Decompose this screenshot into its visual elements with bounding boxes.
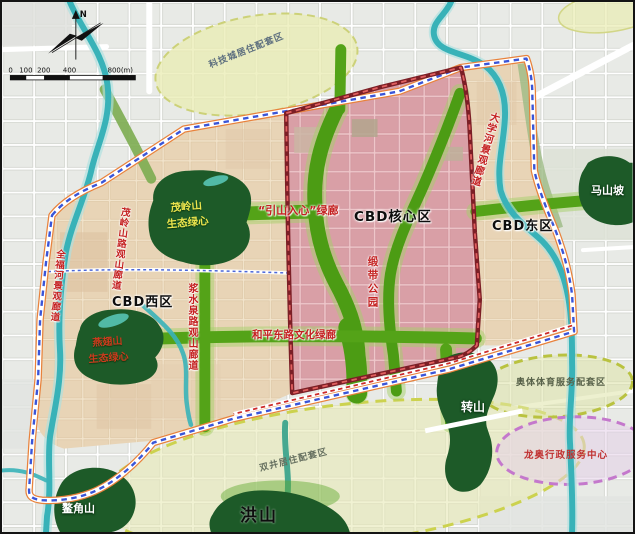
label-mashanpo: 马山坡 bbox=[591, 185, 624, 197]
label-cbd-core: CBD核心区 bbox=[354, 210, 432, 225]
scale-tick-200: 200 bbox=[37, 66, 50, 74]
label-hongshan: 洪山 bbox=[240, 507, 278, 526]
scale-tick-400: 400 bbox=[63, 66, 76, 74]
scale-tick-800: 800(m) bbox=[108, 66, 134, 74]
label-aojiaoshan: 鳌角山 bbox=[62, 503, 95, 515]
label-jiangshuiquan-corridor: 浆水泉路观山廊道 bbox=[186, 283, 197, 371]
label-longao-area: 龙奥行政服务中心 bbox=[524, 451, 608, 461]
scale-tick-0: 0 bbox=[8, 66, 12, 74]
label-maoling-heart: 茂岭山 生态绿心 bbox=[165, 197, 210, 233]
label-ribbon-park: 缎带公园 bbox=[366, 256, 378, 310]
scale-tick-100: 100 bbox=[19, 66, 32, 74]
planning-map: N 0 100 200 400 800(m) 科技城居住配套区 大学河景观廊道 … bbox=[0, 0, 635, 534]
label-aoti-area: 奥体体育服务配套区 bbox=[516, 379, 606, 389]
label-cbd-east: CBD东区 bbox=[492, 220, 553, 234]
scale-bar: 0 100 200 400 800(m) bbox=[8, 66, 135, 79]
compass-north-label: N bbox=[80, 9, 87, 19]
label-yinshan-corridor: “引山入心”绿廊 bbox=[258, 205, 338, 217]
label-cbd-west: CBD西区 bbox=[112, 296, 173, 310]
label-yanchi-heart: 燕翅山 生态绿心 bbox=[87, 334, 129, 368]
label-yanchi-line2: 生态绿心 bbox=[88, 349, 129, 367]
label-zhuanshan: 转山 bbox=[461, 401, 485, 414]
label-heping-corridor: 和平东路文化绿廊 bbox=[252, 330, 336, 342]
